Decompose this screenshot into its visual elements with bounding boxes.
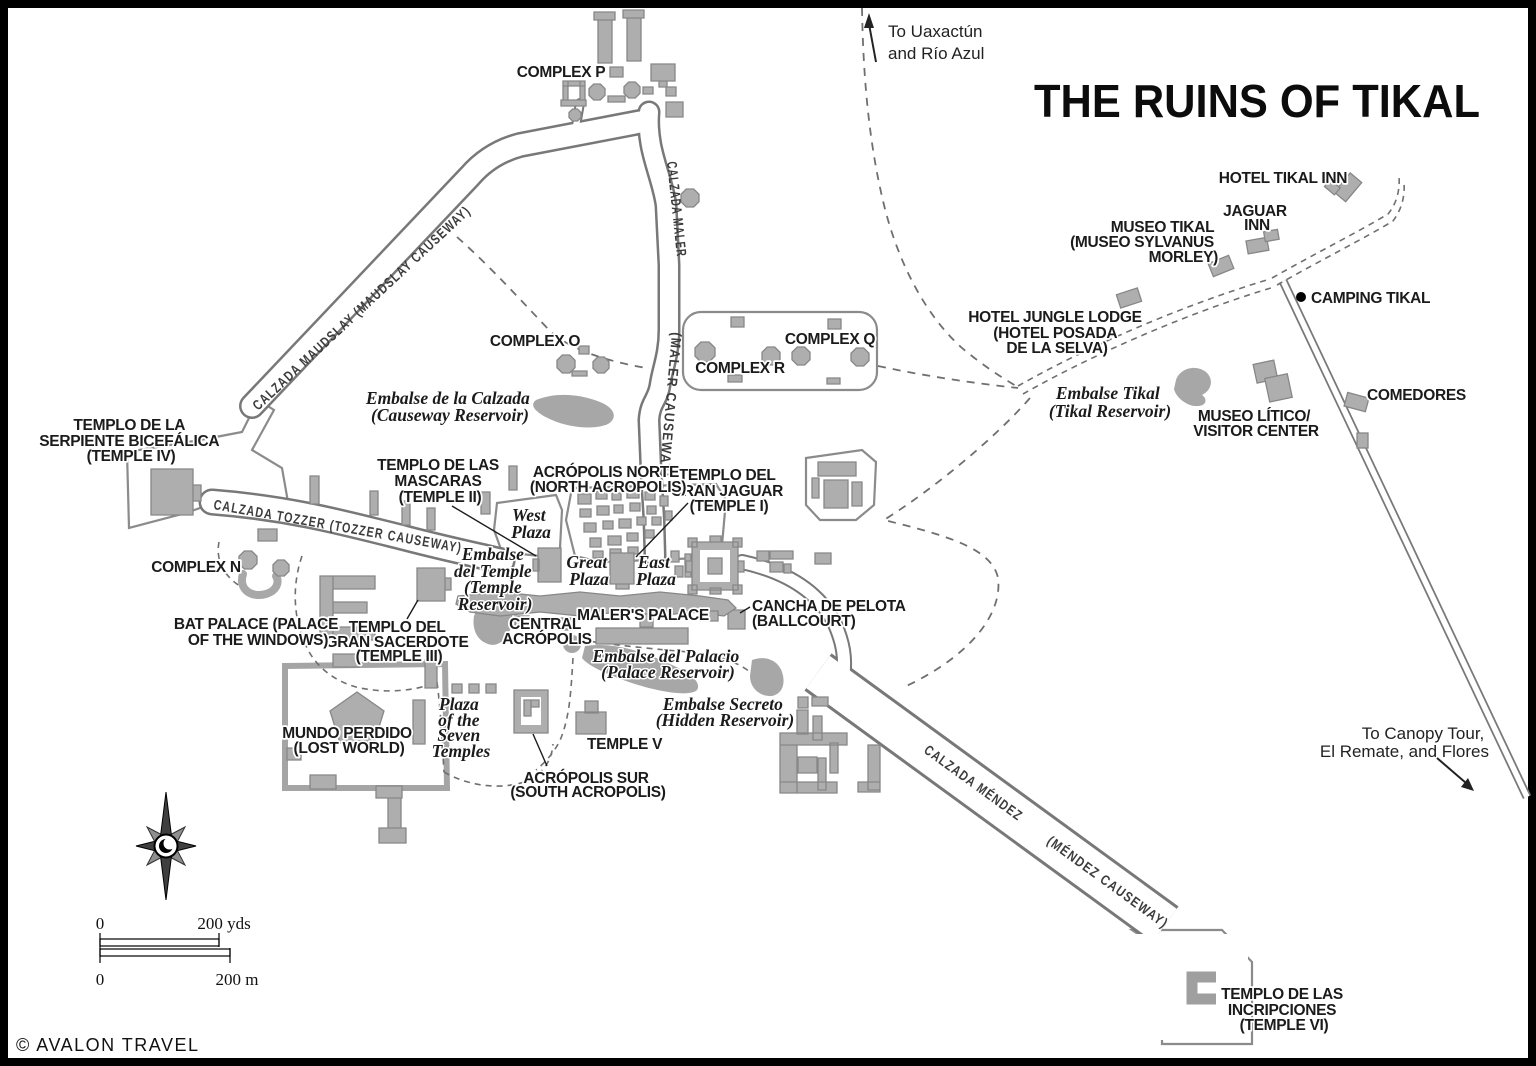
- bat-palace-label: BAT PALACE (PALACE OF THE WINDOWS): [174, 616, 342, 649]
- map-frame: THE RUINS OF TIKAL To Uaxactún and Río A…: [0, 0, 1536, 1066]
- scale-yds-zero: 0: [96, 914, 105, 933]
- complex-o-label: COMPLEX O: [490, 333, 581, 350]
- hidden-reservoir-label: Embalse Secreto (Hidden Reservoir): [656, 694, 795, 730]
- temple-reservoir-label: Embalse del Temple (Temple Reservoir): [454, 544, 536, 614]
- east-plaza-label: East Plaza: [635, 552, 676, 589]
- complex-n-label: COMPLEX N: [151, 559, 241, 576]
- map-paper: [8, 8, 1528, 1058]
- tikal-reservoir-label: Embalse Tikal (Tikal Reservoir): [1049, 383, 1171, 421]
- copyright: © AVALON TRAVEL: [16, 1035, 200, 1055]
- museo-litico-label: MUSEO LÍTICO/ VISITOR CENTER: [1193, 408, 1319, 440]
- causeway-reservoir-label: Embalse de la Calzada (Causeway Reservoi…: [365, 388, 534, 425]
- seven-temples-plaza-label: Plaza of the Seven Temples: [432, 694, 491, 761]
- camping-dot: [1296, 292, 1306, 302]
- comedores-label: COMEDORES: [1367, 387, 1466, 404]
- complex-p-label: COMPLEX P: [517, 64, 606, 81]
- camping-tikal-label: CAMPING TIKAL: [1311, 290, 1430, 307]
- mundo-perdido-label: MUNDO PERDIDO (LOST WORLD): [282, 725, 416, 757]
- temple6-label: TEMPLO DE LAS INCRIPCIONES (TEMPLE VI): [1221, 986, 1347, 1034]
- tikal-map-canvas: THE RUINS OF TIKAL To Uaxactún and Río A…: [0, 0, 1536, 1066]
- hotel-tikal-inn-label: HOTEL TIKAL INN: [1219, 170, 1348, 187]
- complex-q-label: COMPLEX Q: [785, 331, 876, 348]
- north-acropolis-label: ACRÓPOLIS NORTE (NORTH ACROPOLIS): [530, 463, 686, 496]
- west-plaza-label: West Plaza: [510, 505, 551, 542]
- complex-r-label: COMPLEX R: [695, 360, 785, 377]
- scale-yds-max: 200 yds: [197, 914, 250, 933]
- great-plaza-label: Great Plaza: [566, 552, 611, 589]
- page-title: THE RUINS OF TIKAL: [1034, 75, 1480, 127]
- maler-palace-label: MALER'S PALACE: [577, 607, 709, 624]
- scale-m-zero: 0: [96, 970, 105, 989]
- south-acropolis-label: ACRÓPOLIS SUR (SOUTH ACROPOLIS): [510, 769, 665, 801]
- palace-reservoir-label: Embalse del Palacio (Palace Reservoir): [591, 646, 743, 682]
- temple5-label: TEMPLE V: [587, 736, 663, 753]
- scale-m-max: 200 m: [216, 970, 259, 989]
